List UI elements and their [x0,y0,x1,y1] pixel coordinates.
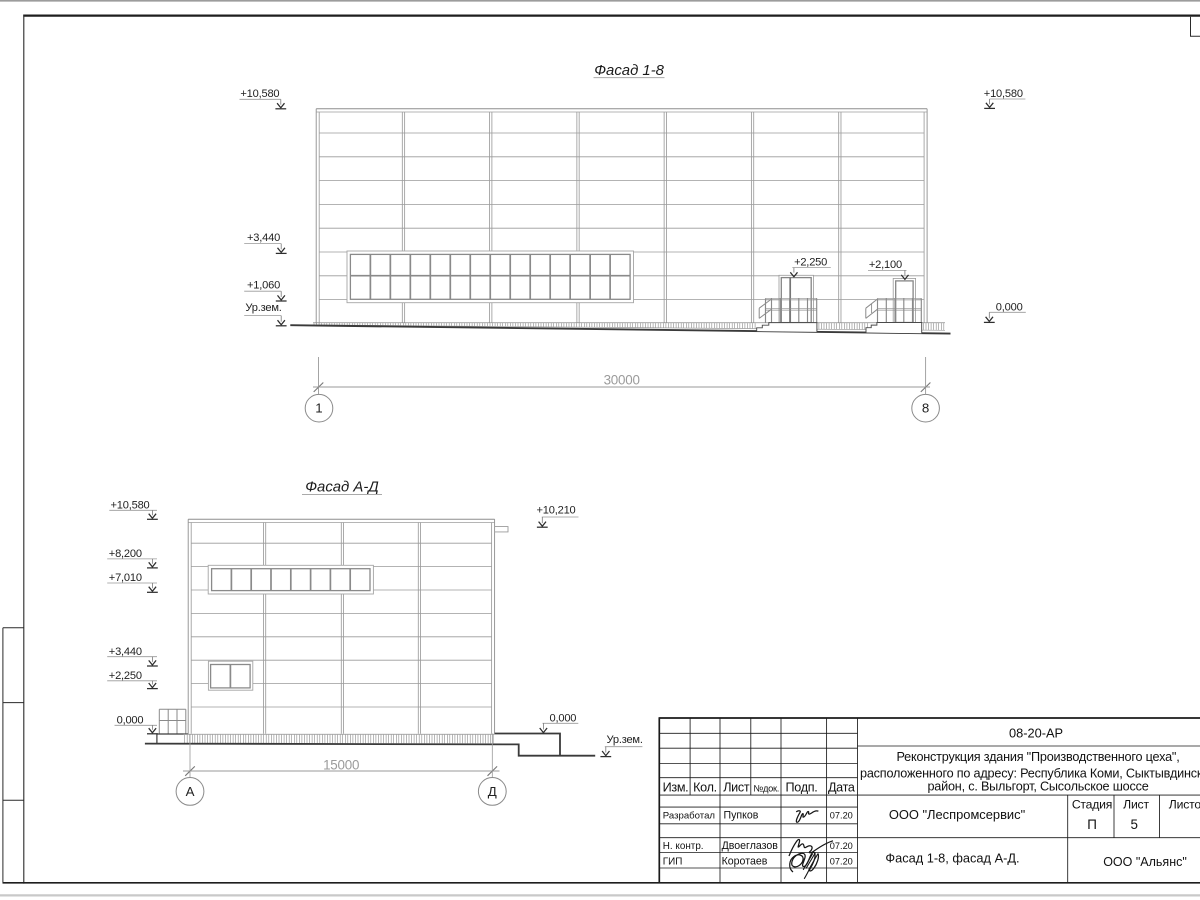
svg-text:+1,060: +1,060 [247,280,280,292]
svg-text:+10,210: +10,210 [537,505,576,517]
svg-text:15000: 15000 [323,757,359,772]
svg-text:+10,580: +10,580 [984,88,1023,100]
svg-text:Разработал: Разработал [663,811,715,822]
svg-text:0,000: 0,000 [117,714,144,726]
svg-text:5: 5 [1130,817,1137,832]
svg-text:Пупков: Пупков [724,810,759,822]
svg-text:1: 1 [315,401,322,416]
svg-text:П: П [1087,817,1097,832]
svg-text:+7,010: +7,010 [109,572,142,584]
svg-text:08-20-АР: 08-20-АР [1009,726,1063,741]
svg-text:Кол.: Кол. [693,781,717,795]
svg-text:расположенного по адресу: Респ: расположенного по адресу: Республика Ком… [860,766,1200,780]
svg-text:ООО "Альянс": ООО "Альянс" [1103,855,1187,869]
svg-text:+2,100: +2,100 [869,259,902,271]
svg-text:Коротаев: Коротаев [722,856,768,868]
svg-text:+3,440: +3,440 [109,646,142,658]
svg-text:0,000: 0,000 [996,302,1023,314]
svg-text:8: 8 [922,401,929,416]
svg-text:Д: Д [488,784,497,799]
svg-text:07.20: 07.20 [830,811,853,821]
svg-text:Лист: Лист [1123,798,1149,812]
svg-text:Ур.зем.: Ур.зем. [245,302,281,314]
svg-text:Н. контр.: Н. контр. [663,841,704,852]
svg-text:Фасад 1-8: Фасад 1-8 [594,63,664,79]
svg-text:+8,200: +8,200 [109,548,142,560]
svg-text:Стадия: Стадия [1072,798,1112,812]
svg-text:30000: 30000 [604,373,640,388]
svg-text:Дата: Дата [828,781,855,795]
svg-text:район, с. Выльгорт, Сысольское: район, с. Выльгорт, Сысольское шоссе [927,779,1148,793]
svg-text:Листов: Листов [1169,798,1200,812]
svg-text:Фасад 1-8, фасад А-Д.: Фасад 1-8, фасад А-Д. [885,850,1019,865]
svg-text:А: А [186,784,195,799]
svg-text:+10,580: +10,580 [240,88,279,100]
svg-text:ГИП: ГИП [663,857,683,868]
svg-text:ООО "Леспромсервис": ООО "Леспромсервис" [889,807,1026,822]
svg-text:Изм.: Изм. [663,781,689,795]
svg-text:Фасад А-Д: Фасад А-Д [305,480,379,496]
svg-text:Лист: Лист [723,781,750,795]
svg-text:+2,250: +2,250 [109,670,142,682]
svg-text:+10,580: +10,580 [111,499,150,511]
svg-text:Реконструкция здания "Производ: Реконструкция здания "Производственного … [896,750,1179,764]
svg-text:07.20: 07.20 [830,857,853,867]
svg-text:Ур.зем.: Ур.зем. [607,734,643,746]
svg-text:+3,440: +3,440 [247,232,280,244]
svg-text:07.20: 07.20 [830,841,853,851]
svg-text:+2,250: +2,250 [794,256,827,268]
svg-text:№док.: №док. [753,784,779,794]
svg-text:0,000: 0,000 [550,712,577,724]
svg-text:Двоеглазов: Двоеглазов [722,840,779,852]
svg-text:Подп.: Подп. [786,781,818,795]
